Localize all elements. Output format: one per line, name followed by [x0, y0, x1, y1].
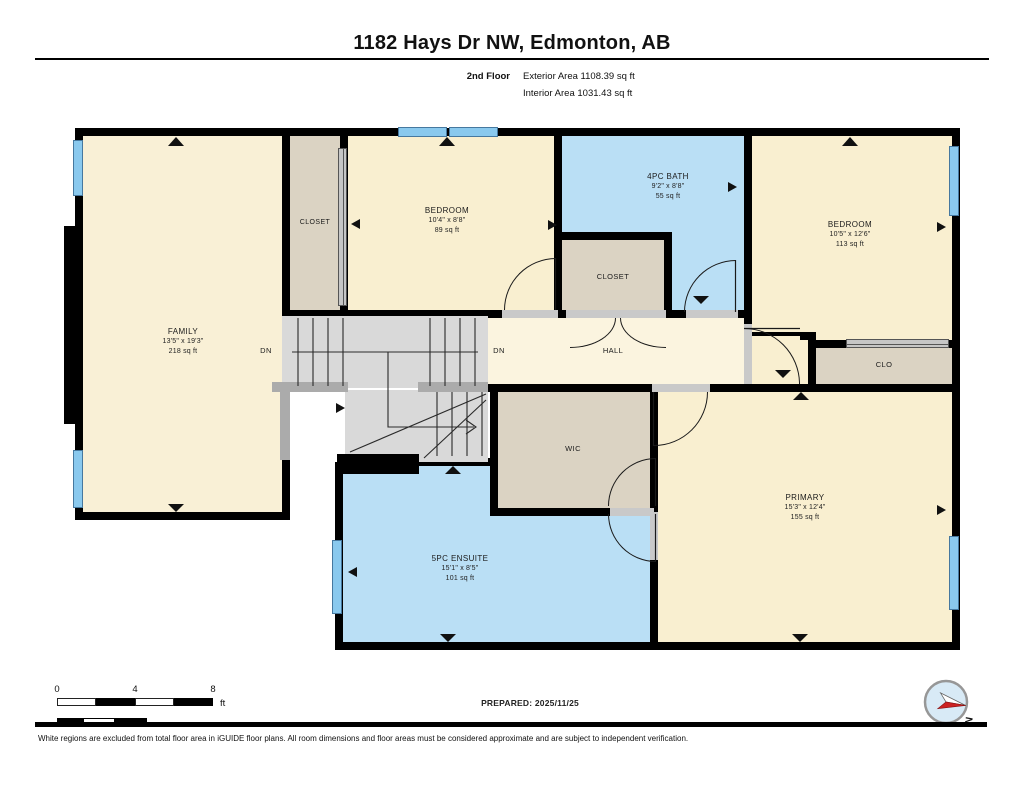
- label-dn-right: DN: [487, 346, 511, 355]
- room-area: 218 sq ft: [123, 347, 243, 357]
- label-closet-top: CLOSET: [287, 219, 343, 226]
- room-dims: 9'2" x 8'8": [608, 182, 728, 192]
- label-wic: WIC: [549, 444, 597, 453]
- room-dims: 15'1" x 8'5": [398, 564, 522, 574]
- stair-treads: [298, 318, 486, 458]
- scale-unit-label: ft: [220, 698, 225, 709]
- label-primary: PRIMARY 15'3" x 12'4" 155 sq ft: [743, 493, 867, 523]
- room-dims: 15'3" x 12'4": [743, 503, 867, 513]
- footer-rule: [35, 722, 987, 727]
- room-area: 55 sq ft: [608, 192, 728, 202]
- room-name: 4PC BATH: [608, 172, 728, 182]
- label-4pc-bath: 4PC BATH 9'2" x 8'8" 55 sq ft: [608, 172, 728, 202]
- room-name: FAMILY: [123, 327, 243, 337]
- room-name: 5PC ENSUITE: [398, 554, 522, 564]
- disclaimer-text: White regions are excluded from total fl…: [38, 734, 968, 743]
- scale-bar-segment: [96, 698, 135, 706]
- room-dims: 10'4" x 8'8": [387, 216, 507, 226]
- room-area: 113 sq ft: [788, 240, 912, 250]
- floor-plan-page: 1182 Hays Dr NW, Edmonton, AB 2nd Floor …: [0, 0, 1024, 791]
- label-family: FAMILY 13'5" x 19'3" 218 sq ft: [123, 327, 243, 357]
- label-ensuite: 5PC ENSUITE 15'1" x 8'5" 101 sq ft: [398, 554, 522, 584]
- label-bedroom-middle: BEDROOM 10'4" x 8'8" 89 sq ft: [387, 206, 507, 236]
- scale-tick-0: 0: [48, 684, 66, 695]
- room-name: BEDROOM: [788, 220, 912, 230]
- scale-tick-4: 4: [126, 684, 144, 695]
- room-dims: 10'5" x 12'6": [788, 230, 912, 240]
- room-area: 155 sq ft: [743, 513, 867, 523]
- scale-bar-segment: [135, 698, 174, 706]
- room-area: 101 sq ft: [398, 574, 522, 584]
- room-name: PRIMARY: [743, 493, 867, 503]
- plan-linework: [0, 0, 1024, 791]
- stair-direction-line: [292, 352, 478, 434]
- label-hall: HALL: [589, 346, 637, 355]
- room-name: BEDROOM: [387, 206, 507, 216]
- scale-bar-segment: [57, 698, 96, 706]
- prepared-date: PREPARED: 2025/11/25: [400, 698, 660, 708]
- scale-bar-segment: [174, 698, 213, 706]
- wall-arrow-markers: [168, 137, 946, 642]
- label-dn-left: DN: [254, 346, 278, 355]
- scale-tick-8: 8: [204, 684, 222, 695]
- label-closet-middle: CLOSET: [563, 272, 663, 281]
- label-bedroom-right: BEDROOM 10'5" x 12'6" 113 sq ft: [788, 220, 912, 250]
- label-clo: CLO: [858, 360, 910, 369]
- room-area: 89 sq ft: [387, 226, 507, 236]
- room-dims: 13'5" x 19'3": [123, 337, 243, 347]
